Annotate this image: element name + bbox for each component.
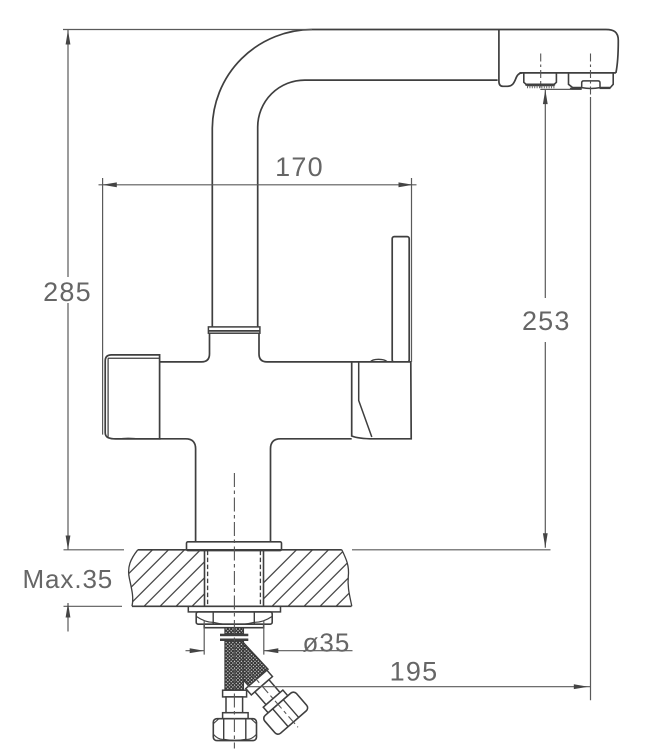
- svg-text:170: 170: [275, 152, 324, 182]
- svg-text:285: 285: [43, 277, 92, 307]
- svg-text:Max.35: Max.35: [23, 564, 114, 594]
- svg-text:253: 253: [522, 306, 571, 336]
- svg-text:195: 195: [390, 657, 439, 687]
- svg-text:ø35: ø35: [303, 627, 351, 657]
